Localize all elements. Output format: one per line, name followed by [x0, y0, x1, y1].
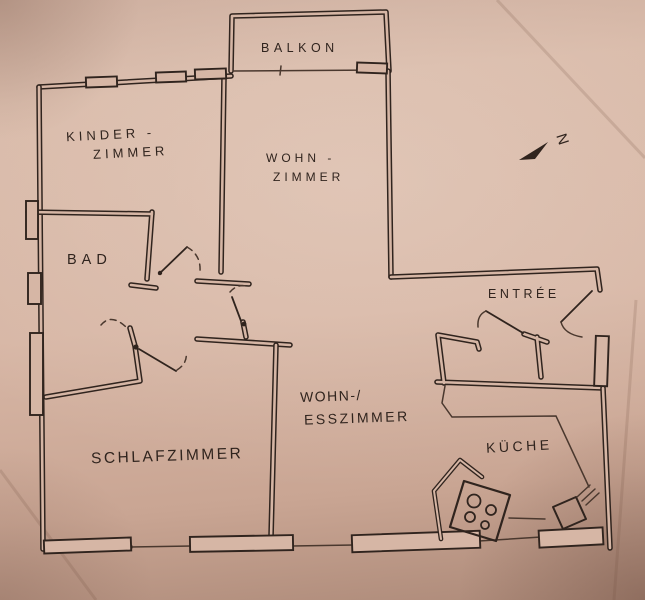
- bad-walls: [28, 212, 152, 279]
- compass-label: N: [552, 131, 572, 147]
- door-leaf-esszimmer: [232, 297, 241, 321]
- label-kinderzimmer-1: KINDER -: [66, 125, 156, 145]
- window-kinderzimmer-3: [195, 68, 226, 79]
- window-kinderzimmer-1: [86, 76, 117, 87]
- doors-layer: [101, 247, 592, 371]
- compass: N: [519, 131, 572, 160]
- label-wohnzimmer-2: ZIMMER: [273, 170, 344, 184]
- door-hinge-dot-2: [242, 322, 247, 327]
- schlafzimmer-north-wall: [46, 328, 140, 397]
- window-kinderzimmer-2: [156, 71, 186, 82]
- door-arc-esszimmer: [230, 286, 246, 292]
- window-west-schlafzimmer: [30, 333, 43, 415]
- door-hinge-dot-1: [133, 344, 138, 349]
- label-wohn-esszimmer-1: WOHN-/: [300, 387, 362, 405]
- kitchen-open-boundary: [442, 386, 589, 487]
- window-south-esszimmer: [352, 531, 481, 552]
- label-kinderzimmer-2: ZIMMER: [93, 143, 169, 162]
- kitchen-counter-line: [509, 518, 545, 519]
- window-wohnzimmer-top: [357, 62, 387, 73]
- closet-walls: [437, 334, 602, 388]
- label-bad: BAD: [67, 252, 112, 268]
- label-balkon: BALKON: [261, 41, 339, 55]
- walls-layer: [28, 12, 610, 549]
- door-leaf-closet: [486, 311, 523, 333]
- label-kueche: KÜCHE: [486, 435, 553, 455]
- sink-icon: [553, 485, 599, 529]
- window-south-1: [44, 538, 131, 554]
- label-wohnzimmer-1: WOHN -: [266, 151, 335, 165]
- floor-plan-photo: N BALKON KINDER - ZIMMER WOHN - ZIMMER B…: [0, 0, 645, 600]
- door-arc-closet: [478, 311, 486, 327]
- floor-plan-drawing: N BALKON KINDER - ZIMMER WOHN - ZIMMER B…: [0, 0, 645, 600]
- window-south-kueche: [539, 527, 604, 547]
- thin-lines-layer: [130, 66, 589, 547]
- window-south-schlafzimmer: [190, 535, 293, 552]
- north-arrow-icon: [519, 142, 548, 160]
- window-bad: [28, 273, 41, 304]
- door-arc-entrance: [561, 322, 582, 337]
- door-leaf-schlafzimmer: [139, 349, 176, 371]
- door-hinge-dot-3: [158, 271, 162, 275]
- window-west-1: [26, 201, 38, 239]
- label-entree: ENTRÉE: [488, 286, 560, 301]
- door-arc-bad: [187, 247, 200, 271]
- door-arc-schlafzimmer: [177, 352, 186, 370]
- label-wohn-esszimmer-2: ESSZIMMER: [304, 408, 410, 428]
- labels-layer: BALKON KINDER - ZIMMER WOHN - ZIMMER BAD…: [66, 41, 560, 467]
- door-arc-hall-west: [101, 319, 126, 327]
- label-schlafzimmer: SCHLAFZIMMER: [91, 445, 244, 467]
- door-leaf-entrance: [561, 291, 592, 322]
- wall-bar-below-entrance: [594, 336, 609, 386]
- door-leaf-bad: [159, 247, 187, 274]
